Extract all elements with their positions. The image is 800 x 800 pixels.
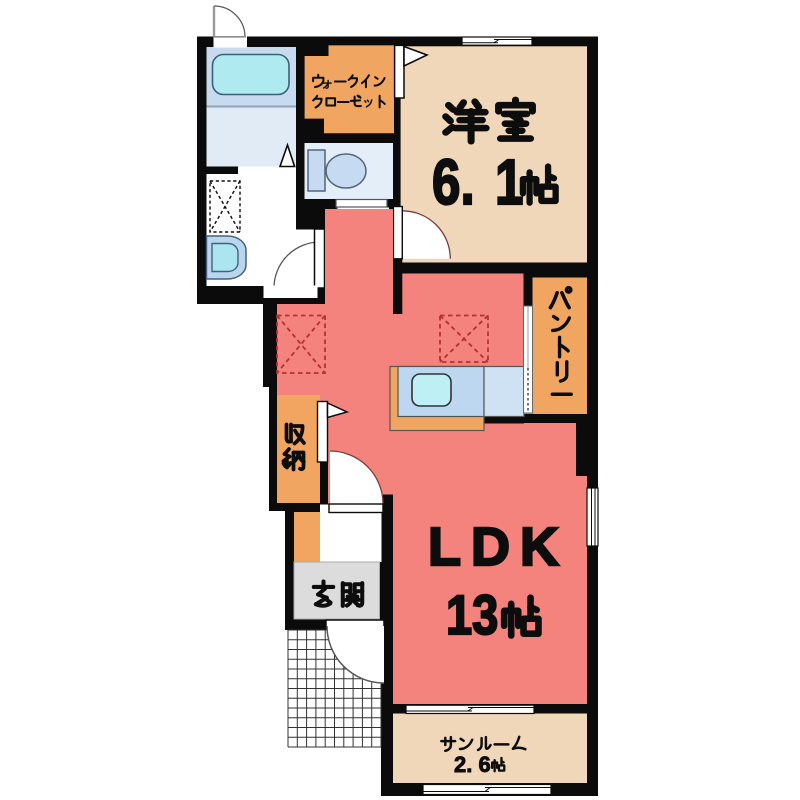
svg-text:13: 13 (446, 583, 498, 646)
svg-text:LDK: LDK (428, 517, 569, 577)
svg-text:1: 1 (495, 148, 523, 219)
svg-text:2. 6: 2. 6 (454, 752, 491, 777)
svg-text:6.: 6. (432, 148, 475, 219)
